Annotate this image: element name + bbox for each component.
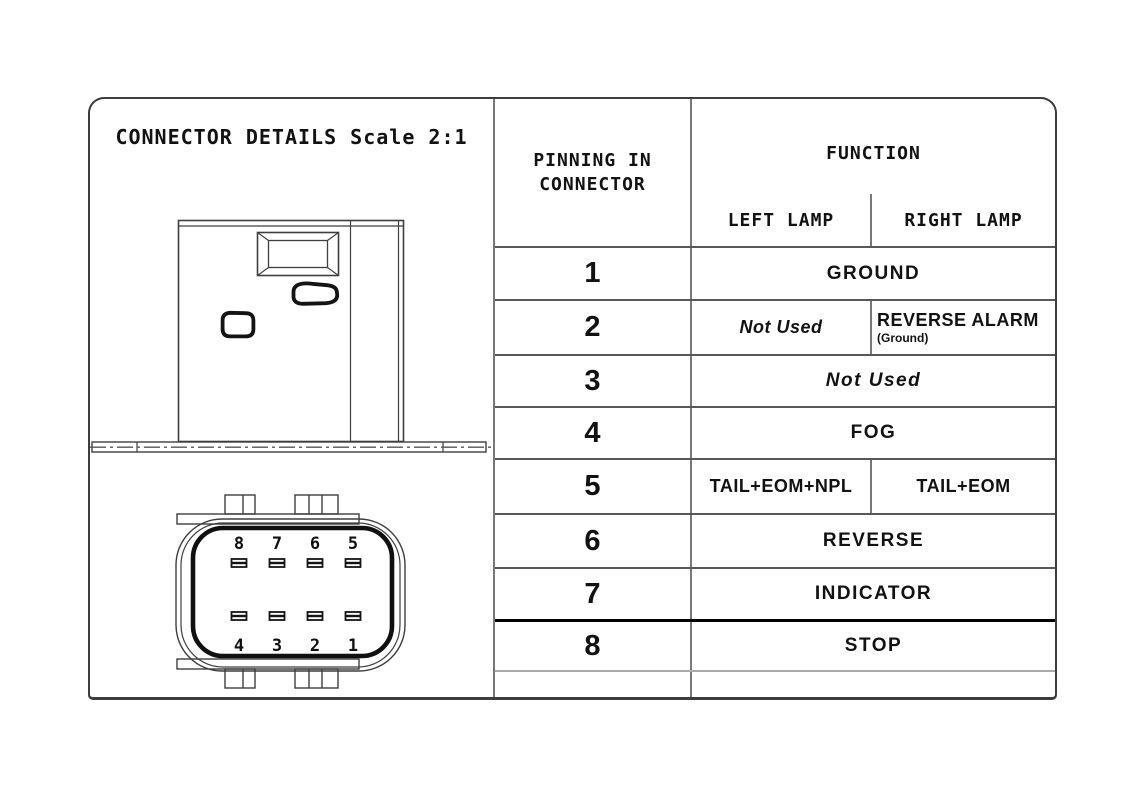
pin-labels-top: 8 7 6 5 — [234, 534, 358, 554]
pin-slots-top — [232, 559, 361, 567]
latch-window — [258, 233, 339, 276]
table-header-row: PINNING IN CONNECTOR FUNCTION LEFT LAMP … — [495, 99, 1055, 248]
mount-tab-bottom-right — [295, 669, 338, 688]
housing-ring-outer — [176, 519, 405, 671]
table-row-pin-5: 5 TAIL+EOM+NPL TAIL+EOM — [495, 460, 1055, 515]
pin-label: 8 — [234, 534, 244, 554]
header-right-lamp: RIGHT LAMP — [872, 194, 1055, 246]
empty-function-cell — [692, 672, 1055, 697]
table-row-pin-6: 6 REVERSE — [495, 515, 1055, 569]
table-row-pin-2: 2 Not Used REVERSE ALARM (Ground) — [495, 301, 1055, 356]
function-cell: FOG — [692, 408, 1055, 458]
empty-pin-cell — [495, 672, 692, 697]
mount-tab-bottom-left — [225, 669, 255, 688]
function-note: (Ground) — [877, 331, 928, 345]
pin-number: 8 — [495, 622, 692, 670]
function-cell-right-lamp: TAIL+EOM — [872, 460, 1055, 513]
pin-number: 6 — [495, 515, 692, 567]
function-cell-left-lamp: Not Used — [692, 301, 872, 354]
pin-label: 4 — [234, 636, 244, 656]
pin-number: 1 — [495, 248, 692, 299]
pin-slots-bottom — [232, 612, 361, 620]
header-pinning-in-connector: PINNING IN CONNECTOR — [495, 99, 692, 246]
function-cell-left-lamp: TAIL+EOM+NPL — [692, 460, 872, 513]
function-cell: STOP — [692, 622, 1055, 670]
header-function-group: FUNCTION LEFT LAMP RIGHT LAMP — [692, 99, 1055, 246]
connector-drawings: 8 7 6 5 — [90, 99, 495, 698]
connector-body — [179, 221, 404, 442]
pin-labels-bottom: 4 3 2 1 — [234, 636, 358, 656]
header-line: CONNECTOR — [539, 173, 646, 197]
seal-opening-left — [223, 313, 254, 337]
pin-number: 7 — [495, 569, 692, 619]
function-cell: GROUND — [692, 248, 1055, 299]
pin-label: 3 — [272, 636, 282, 656]
housing-ring-inner — [181, 523, 400, 667]
function-cell-right-lamp: REVERSE ALARM (Ground) — [872, 301, 1055, 354]
function-cell: INDICATOR — [692, 569, 1055, 619]
connector-side-view — [90, 221, 495, 453]
pin-label: 7 — [272, 534, 282, 554]
table-row-pin-1: 1 GROUND — [495, 248, 1055, 301]
connector-drawing-panel: CONNECTOR DETAILS Scale 2:1 — [90, 99, 495, 697]
mount-tab-top-right — [295, 495, 338, 514]
function-cell: REVERSE — [692, 515, 1055, 567]
pin-number: 4 — [495, 408, 692, 458]
header-left-lamp: LEFT LAMP — [692, 194, 872, 246]
pin-label: 6 — [310, 534, 320, 554]
pin-number: 3 — [495, 356, 692, 406]
function-main: REVERSE ALARM — [877, 310, 1039, 331]
connector-front-view: 8 7 6 5 — [176, 495, 405, 688]
table-row-pin-3: 3 Not Used — [495, 356, 1055, 408]
mount-tab-top-left — [225, 495, 255, 514]
pin-number: 2 — [495, 301, 692, 354]
pin-number: 5 — [495, 460, 692, 513]
header-function: FUNCTION — [692, 99, 1055, 194]
pin-label: 1 — [348, 636, 358, 656]
housing-seal — [193, 528, 392, 656]
connector-details-sheet: CONNECTOR DETAILS Scale 2:1 — [88, 97, 1057, 700]
header-line: PINNING IN — [533, 149, 651, 173]
table-row-pin-7: 7 INDICATOR — [495, 569, 1055, 622]
table-row-pin-8: 8 STOP — [495, 622, 1055, 672]
pin-label: 2 — [310, 636, 320, 656]
pin-label: 5 — [348, 534, 358, 554]
header-lamp-subrow: LEFT LAMP RIGHT LAMP — [692, 194, 1055, 246]
function-cell: Not Used — [692, 356, 1055, 406]
pinning-table: PINNING IN CONNECTOR FUNCTION LEFT LAMP … — [495, 99, 1055, 697]
table-row-pin-4: 4 FOG — [495, 408, 1055, 460]
table-row-empty — [495, 672, 1055, 697]
seal-opening-right — [294, 283, 338, 303]
